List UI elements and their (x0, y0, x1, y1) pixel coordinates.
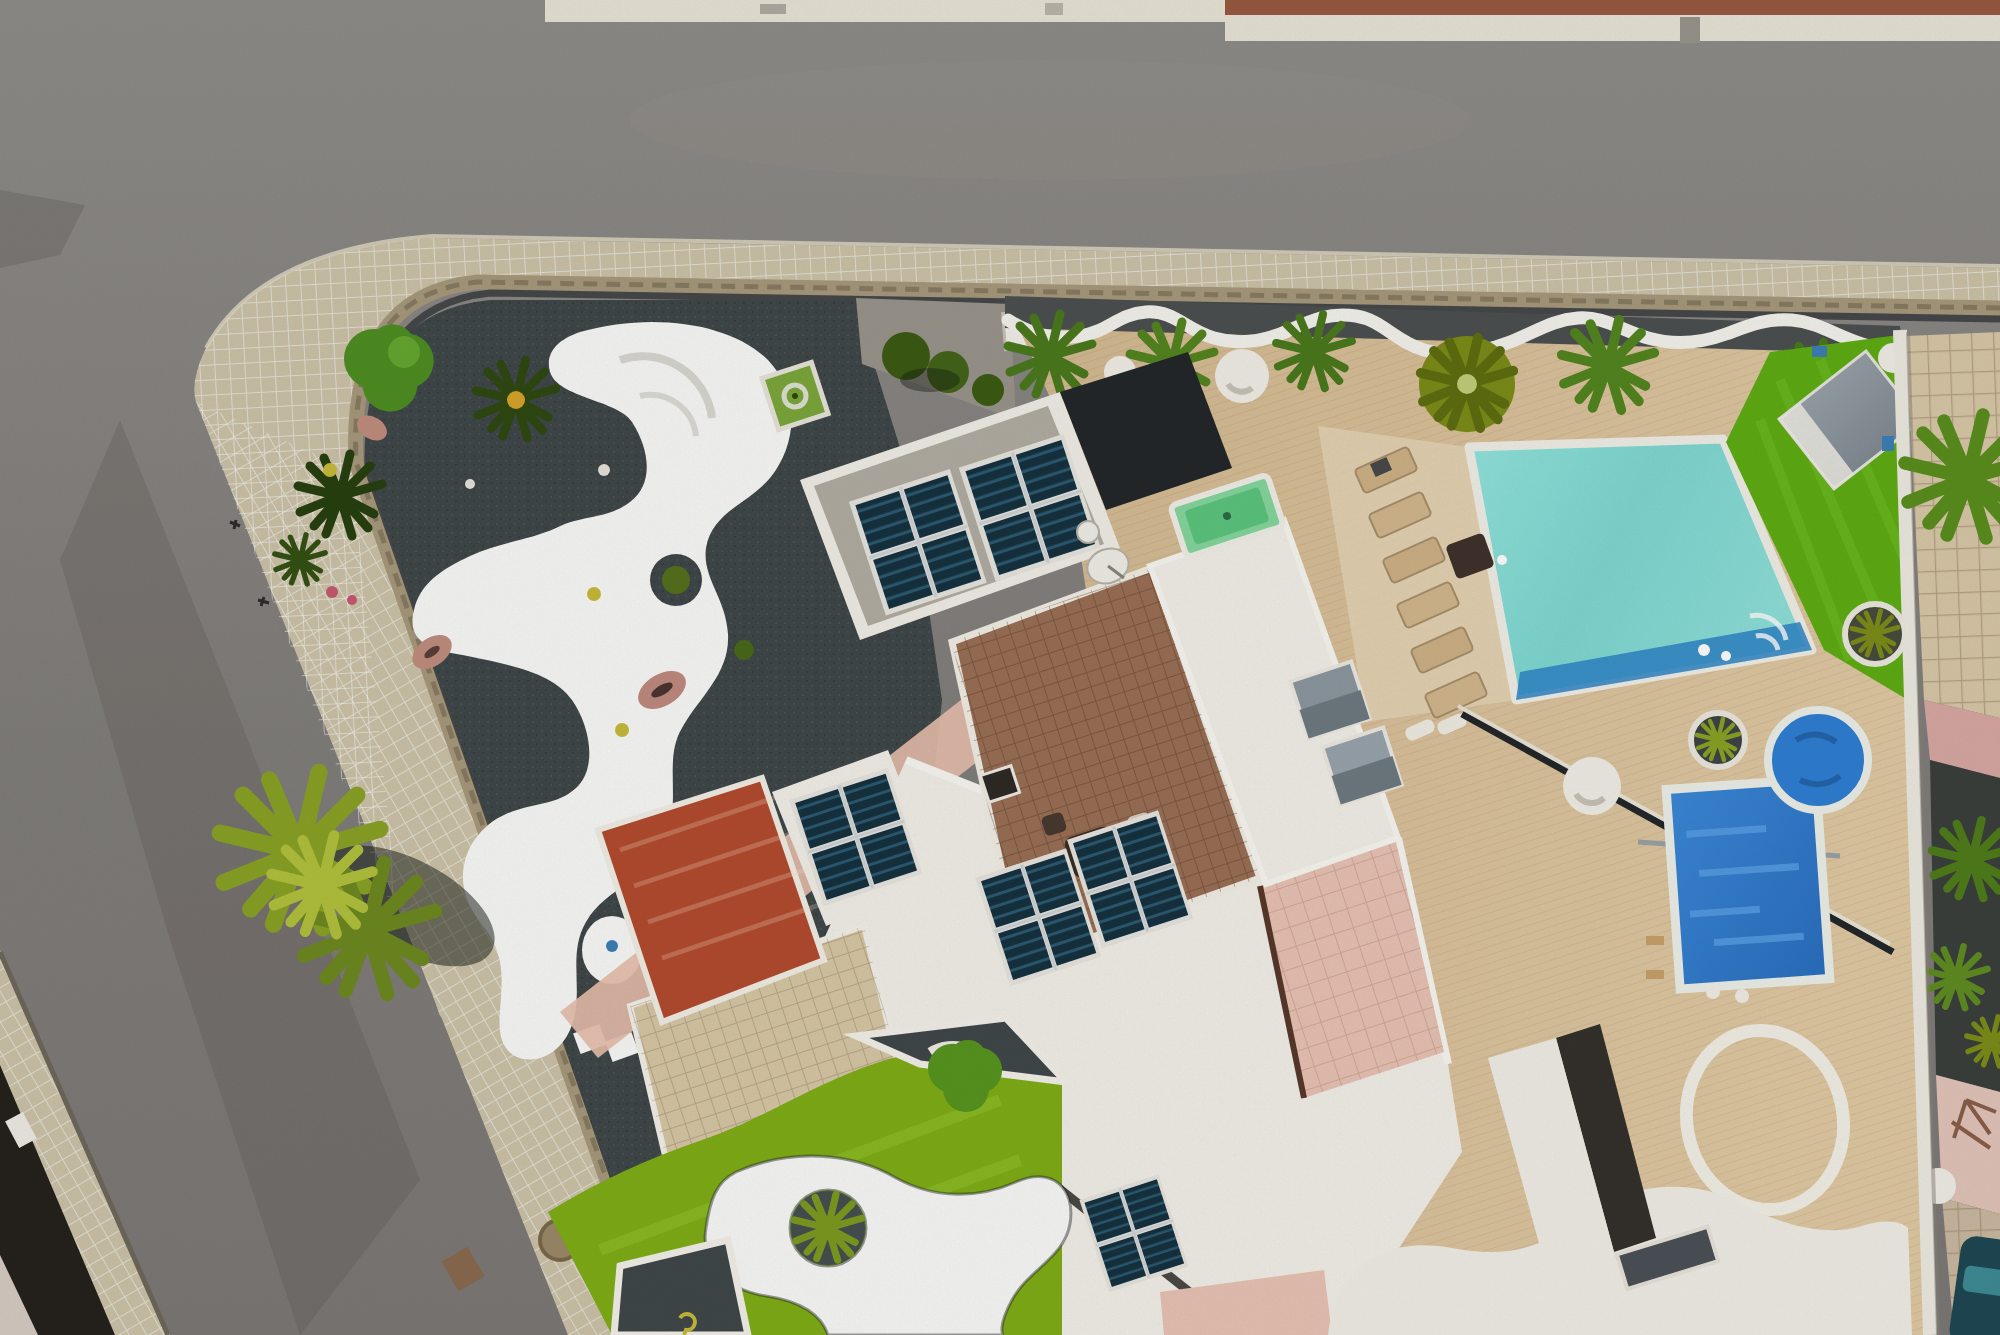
photo-grain (0, 0, 2000, 1335)
aerial-photo (0, 0, 2000, 1335)
